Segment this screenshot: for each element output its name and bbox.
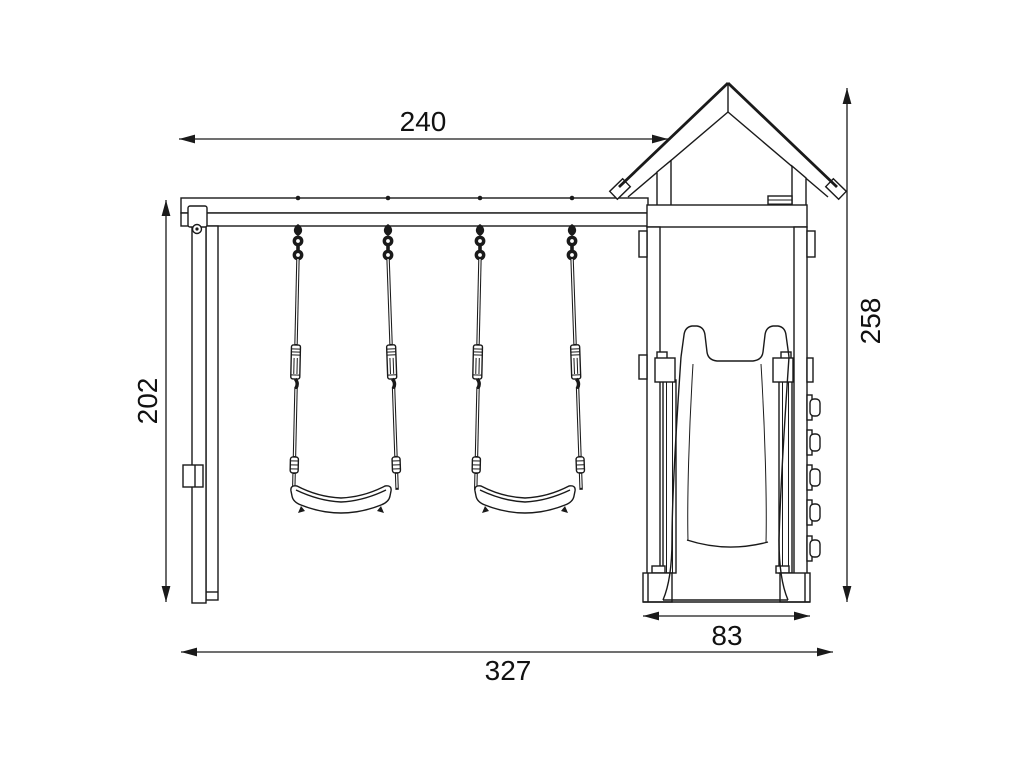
rail-clamp-right — [773, 358, 793, 382]
swing-hook — [293, 224, 304, 260]
swing-seat — [291, 486, 391, 513]
tower-roof — [610, 83, 847, 207]
arrowhead-left-icon — [643, 612, 659, 621]
swing-hook — [475, 224, 486, 260]
slide-support-rails — [655, 352, 793, 573]
climbing-hold — [807, 536, 820, 561]
dimension-label-left-height: 202 — [132, 378, 163, 425]
slide-entrance — [681, 326, 789, 361]
dimension-right-height: 258 — [843, 88, 886, 602]
arrowhead-left-icon — [181, 648, 197, 657]
dimension-left-height: 202 — [132, 200, 170, 602]
arrowhead-right-icon — [794, 612, 810, 621]
dimension-total-width: 327 — [181, 648, 833, 686]
climbing-hold — [807, 500, 820, 525]
dimension-label-total-width: 327 — [485, 655, 532, 686]
tower-post-left — [647, 227, 660, 575]
left-post-front — [192, 226, 206, 603]
tower-bracket-right — [807, 231, 815, 257]
arrowhead-down-icon — [843, 586, 852, 602]
climbing-hold — [807, 430, 820, 455]
swing-rope — [470, 257, 485, 490]
slide-surface-curve — [687, 540, 768, 547]
arrowhead-right-icon — [817, 648, 833, 657]
dimension-tower-width: 83 — [643, 612, 810, 651]
left-post-rear — [206, 226, 218, 600]
tower-bracket-left — [639, 231, 647, 257]
tower-top-beam — [647, 205, 807, 227]
dimension-label-tower-width: 83 — [711, 620, 742, 651]
swing-left — [288, 224, 401, 513]
roof-board-left — [619, 83, 728, 187]
roof-board-right — [728, 83, 837, 187]
arrowhead-up-icon — [843, 88, 852, 104]
swing-hook — [383, 224, 394, 260]
tower-post-right — [794, 227, 807, 575]
arrowhead-down-icon — [162, 586, 171, 602]
climbing-hold — [807, 465, 820, 490]
dimension-top-width: 240 — [179, 106, 668, 143]
arrowhead-left-icon — [179, 135, 195, 144]
swing-right — [470, 224, 585, 513]
swing-set-dimension-drawing: 240 202 258 83 327 — [0, 0, 1024, 768]
top-beam — [181, 198, 648, 213]
play-tower — [610, 83, 847, 602]
swing-rope — [288, 257, 303, 490]
arrowhead-up-icon — [162, 200, 171, 216]
gable-post-right — [792, 166, 806, 206]
swing-hook — [567, 224, 578, 260]
swing-rope — [384, 257, 402, 490]
roof-eave-tab-left — [610, 179, 631, 199]
swing-rope — [568, 257, 586, 490]
top-beam-lower-board — [181, 213, 648, 226]
tower-tab-left — [639, 355, 647, 379]
rail-clamp-left — [655, 358, 675, 382]
tower-tab-right — [807, 358, 813, 382]
climbing-hold — [807, 395, 820, 420]
gable-post-left — [657, 161, 671, 207]
technical-drawing: 240 202 258 83 327 — [0, 0, 1024, 768]
swing-seat — [475, 486, 575, 513]
roof-eave-tab-right — [826, 179, 847, 199]
dimension-label-right-height: 258 — [855, 298, 886, 345]
post-anchor-bracket — [183, 465, 203, 487]
dimension-label-top-width: 240 — [400, 106, 447, 137]
climbing-holds — [807, 395, 820, 561]
